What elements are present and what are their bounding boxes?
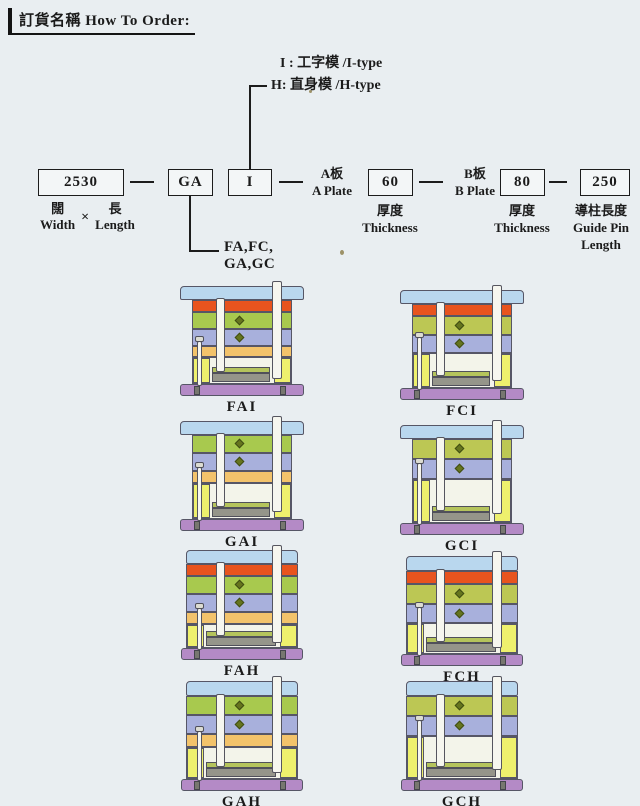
mold-label: GAH (180, 794, 304, 806)
return-pin-head (415, 715, 424, 721)
return-pin-head (195, 336, 204, 342)
guide-pin-right (272, 416, 282, 512)
guide-pin-length-box: 250 (580, 169, 630, 196)
mold-diagram-gci: GCI (400, 425, 524, 555)
mold-drawing (180, 421, 304, 531)
return-pin-left (417, 607, 422, 656)
a-plate-thickness-box: 60 (368, 169, 413, 196)
return-pin-head (415, 602, 424, 608)
ejector-plate (432, 512, 490, 521)
thickness-en: Thickness (487, 220, 557, 237)
guide-pin-center (436, 302, 445, 376)
return-pin-head (195, 726, 204, 732)
series-code-box: GA (168, 169, 213, 196)
mold-label: FCI (400, 403, 524, 420)
width-label: 闊 Width (40, 201, 75, 234)
mold-diagram-fah: FAH (180, 550, 304, 680)
guide-pin-right (492, 551, 502, 648)
b-plate-thickness-label: 厚度 Thickness (487, 203, 557, 237)
page-title-zh: 訂貨名稱 (19, 13, 81, 29)
thickness-en: Thickness (355, 220, 425, 237)
return-pin-left (197, 341, 202, 386)
length-label: 長 Length (95, 201, 135, 234)
width-label-zh: 闊 (51, 201, 64, 217)
scan-speck (340, 250, 344, 255)
legend-h-type: H: 直身模 /H-type (271, 74, 381, 94)
bolt-left (414, 525, 420, 534)
series-connector-vertical (189, 196, 191, 252)
top-clamp-plate (180, 421, 304, 435)
bolt-right (500, 390, 506, 399)
ejector-plate (426, 768, 496, 777)
bolt-left (414, 781, 420, 790)
mold-label: FAH (180, 663, 304, 680)
ejector-plate (432, 377, 490, 386)
mold-drawing (400, 425, 524, 535)
guide-pin-right (272, 281, 282, 379)
bolt-right (280, 650, 286, 659)
bolt-left (194, 386, 200, 395)
connector-dash (279, 181, 303, 183)
guide-pin-right (272, 545, 282, 643)
mold-diagram-gch: GCH (400, 681, 524, 806)
spacer-block-right (500, 624, 517, 653)
type-code-box: I (228, 169, 272, 196)
return-pin-head (415, 458, 424, 464)
bolt-right (280, 521, 286, 530)
return-pin-left (197, 608, 202, 650)
bolt-right (500, 525, 506, 534)
bolt-right (500, 781, 506, 790)
mold-drawing (180, 286, 304, 396)
return-pin-left (197, 467, 202, 521)
legend-bracket-horizontal (249, 85, 267, 87)
guide-pin-right (272, 676, 282, 773)
b-plate-label-zh: B板 (446, 166, 504, 183)
top-clamp-plate (180, 286, 304, 300)
guide-pin-center (216, 298, 225, 372)
mold-drawing (180, 550, 304, 660)
page-title: 訂貨名稱 How To Order: (8, 8, 195, 35)
guide-pin-center (436, 569, 445, 642)
length-label-en: Length (95, 217, 135, 233)
spacer-block-right (500, 737, 517, 778)
mold-label: GCH (400, 794, 524, 806)
bolt-left (414, 390, 420, 399)
guide-pin-right (492, 676, 502, 770)
catalog-page: 訂貨名稱 How To Order: I : 工字模 /I-type H: 直身… (0, 0, 640, 806)
spacer-block-right (280, 748, 297, 778)
ejector-plate (212, 508, 270, 517)
mold-label: GCI (400, 538, 524, 555)
b-plate-thickness-box: 80 (500, 169, 545, 196)
legend-bracket-vertical (249, 85, 251, 169)
guide-pin-center (216, 694, 225, 767)
guide-pin-center (436, 694, 445, 767)
width-length-label: 闊 Width × 長 Length (40, 201, 135, 234)
page-title-en: How To Order: (85, 13, 190, 29)
legend-i-type: I : 工字模 /I-type (280, 52, 382, 72)
guide-pin-right (492, 285, 502, 381)
return-pin-left (417, 463, 422, 525)
mold-drawing (180, 681, 304, 791)
multiply-sign: × (81, 210, 89, 226)
guide-pin-en2: Length (563, 237, 639, 254)
bolt-right (280, 386, 286, 395)
ejector-plate (206, 637, 276, 646)
bolt-left (194, 650, 200, 659)
bolt-left (194, 781, 200, 790)
guide-pin-zh: 導柱長度 (563, 203, 639, 220)
bolt-left (194, 521, 200, 530)
mold-label: GAI (180, 534, 304, 551)
thickness-zh: 厚度 (487, 203, 557, 220)
mold-diagram-fci: FCI (400, 290, 524, 420)
connector-dash (549, 181, 567, 183)
guide-pin-length-label: 導柱長度 Guide Pin Length (563, 203, 639, 254)
bolt-left (414, 656, 420, 665)
mold-diagram-gai: GAI (180, 421, 304, 551)
mold-label: FAI (180, 399, 304, 416)
guide-pin-center (216, 562, 225, 636)
length-label-zh: 長 (109, 201, 122, 217)
return-pin-left (417, 337, 422, 390)
mold-drawing (400, 556, 524, 666)
top-clamp-plate (400, 290, 524, 304)
return-pin-head (195, 462, 204, 468)
guide-pin-en1: Guide Pin (563, 220, 639, 237)
series-connector-horizontal (189, 250, 219, 252)
ejector-plate (206, 768, 276, 777)
a-plate-label-zh: A板 (303, 166, 361, 183)
bolt-right (280, 781, 286, 790)
top-clamp-plate (400, 425, 524, 439)
size-code-box: 2530 (38, 169, 124, 196)
return-pin-head (195, 603, 204, 609)
return-pin-left (197, 731, 202, 781)
width-label-en: Width (40, 217, 75, 233)
mold-diagram-gah: GAH (180, 681, 304, 806)
guide-pin-right (492, 420, 502, 514)
return-pin-head (415, 332, 424, 338)
spacer-block-right (280, 625, 297, 647)
guide-pin-center (436, 437, 445, 511)
series-options-line2: GA,GC (224, 256, 275, 273)
series-options-line1: FA,FC, (224, 239, 275, 256)
mold-drawing (400, 681, 524, 791)
mold-drawing (400, 290, 524, 400)
ejector-plate (212, 373, 270, 382)
a-plate-label: A板 A Plate (303, 166, 361, 200)
ejector-plate (426, 643, 496, 652)
mold-diagram-fch: FCH (400, 556, 524, 686)
a-plate-thickness-label: 厚度 Thickness (355, 203, 425, 237)
a-plate-label-en: A Plate (303, 183, 361, 200)
bolt-right (500, 656, 506, 665)
connector-dash (419, 181, 443, 183)
b-plate-label-en: B Plate (446, 183, 504, 200)
series-options: FA,FC, GA,GC (224, 239, 275, 274)
connector-dash (130, 181, 154, 183)
scan-speck (309, 90, 312, 93)
thickness-zh: 厚度 (355, 203, 425, 220)
b-plate-label: B板 B Plate (446, 166, 504, 200)
guide-pin-center (216, 433, 225, 507)
mold-diagram-fai: FAI (180, 286, 304, 416)
return-pin-left (417, 720, 422, 781)
